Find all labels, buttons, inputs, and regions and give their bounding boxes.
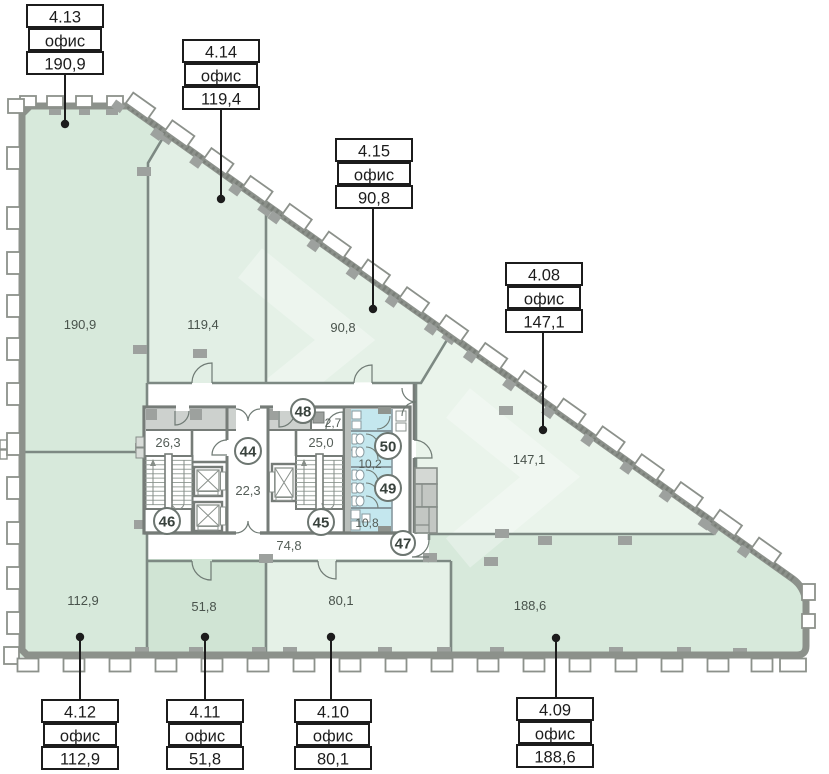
svg-text:офис: офис	[535, 726, 575, 744]
svg-text:офис: офис	[185, 728, 225, 746]
svg-text:4.15: 4.15	[358, 143, 390, 161]
svg-text:2,7: 2,7	[325, 416, 342, 430]
svg-text:4.12: 4.12	[64, 704, 96, 722]
svg-text:45: 45	[313, 515, 330, 532]
svg-text:50: 50	[380, 439, 397, 456]
svg-text:4.08: 4.08	[528, 267, 560, 285]
svg-text:4.10: 4.10	[317, 704, 349, 722]
svg-text:51,8: 51,8	[191, 599, 216, 614]
svg-text:147,1: 147,1	[513, 452, 546, 467]
svg-text:49: 49	[380, 481, 397, 498]
svg-text:4.13: 4.13	[49, 9, 81, 27]
svg-text:80,1: 80,1	[328, 593, 353, 608]
svg-text:4.09: 4.09	[539, 702, 571, 720]
svg-text:22,3: 22,3	[235, 483, 260, 498]
svg-text:188,6: 188,6	[514, 598, 547, 613]
svg-text:74,8: 74,8	[276, 538, 301, 553]
svg-text:офис: офис	[313, 728, 353, 746]
svg-text:офис: офис	[524, 291, 564, 309]
svg-text:офис: офис	[201, 68, 241, 86]
svg-text:47: 47	[395, 536, 412, 553]
svg-text:48: 48	[295, 404, 312, 421]
svg-text:190,9: 190,9	[44, 56, 85, 74]
svg-text:офис: офис	[354, 167, 394, 185]
svg-text:80,1: 80,1	[317, 751, 349, 769]
svg-text:119,4: 119,4	[187, 317, 219, 332]
svg-text:офис: офис	[45, 33, 85, 51]
svg-text:25,0: 25,0	[308, 435, 333, 450]
svg-text:4.11: 4.11	[190, 704, 221, 722]
svg-text:26,3: 26,3	[155, 435, 180, 450]
svg-text:188,6: 188,6	[534, 749, 575, 767]
svg-text:119,4: 119,4	[201, 91, 241, 109]
svg-text:10,8: 10,8	[355, 516, 379, 530]
svg-text:147,1: 147,1	[523, 314, 564, 332]
svg-text:90,8: 90,8	[358, 190, 390, 208]
svg-text:офис: офис	[60, 728, 100, 746]
svg-text:112,9: 112,9	[67, 593, 99, 608]
svg-text:4.14: 4.14	[205, 44, 237, 62]
svg-text:10,2: 10,2	[358, 457, 382, 471]
svg-text:112,9: 112,9	[60, 751, 100, 769]
svg-text:90,8: 90,8	[330, 320, 355, 335]
svg-text:190,9: 190,9	[64, 317, 97, 332]
svg-text:44: 44	[240, 444, 257, 461]
svg-text:46: 46	[159, 514, 176, 531]
svg-text:51,8: 51,8	[189, 751, 221, 769]
